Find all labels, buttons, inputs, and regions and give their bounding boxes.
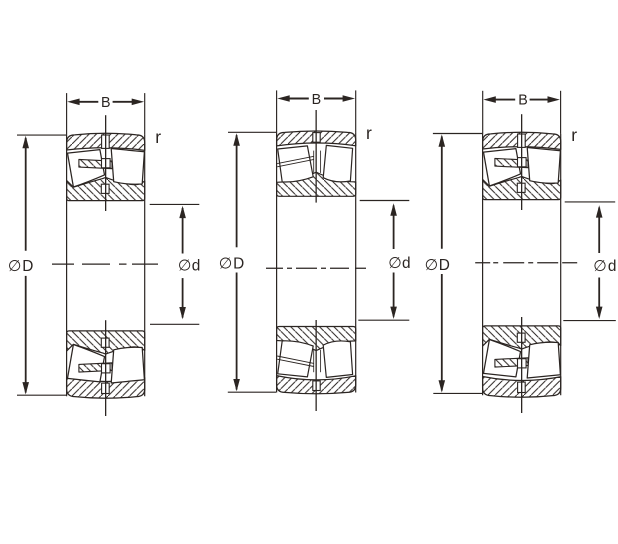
svg-text:∅: ∅ <box>8 258 21 275</box>
svg-text:r: r <box>155 127 161 147</box>
svg-text:D: D <box>233 255 244 272</box>
svg-text:B: B <box>518 93 528 109</box>
svg-text:d: d <box>192 258 201 275</box>
svg-text:d: d <box>402 255 411 272</box>
svg-text:∅: ∅ <box>178 258 191 275</box>
svg-text:∅: ∅ <box>219 255 232 272</box>
svg-text:r: r <box>571 125 577 145</box>
svg-text:D: D <box>22 258 33 275</box>
svg-text:∅: ∅ <box>593 258 606 275</box>
svg-text:B: B <box>101 95 111 111</box>
svg-text:D: D <box>439 257 450 274</box>
svg-text:d: d <box>608 258 617 275</box>
svg-text:B: B <box>312 92 322 108</box>
svg-text:∅: ∅ <box>388 255 401 272</box>
svg-text:r: r <box>366 123 372 143</box>
svg-text:∅: ∅ <box>425 257 438 274</box>
